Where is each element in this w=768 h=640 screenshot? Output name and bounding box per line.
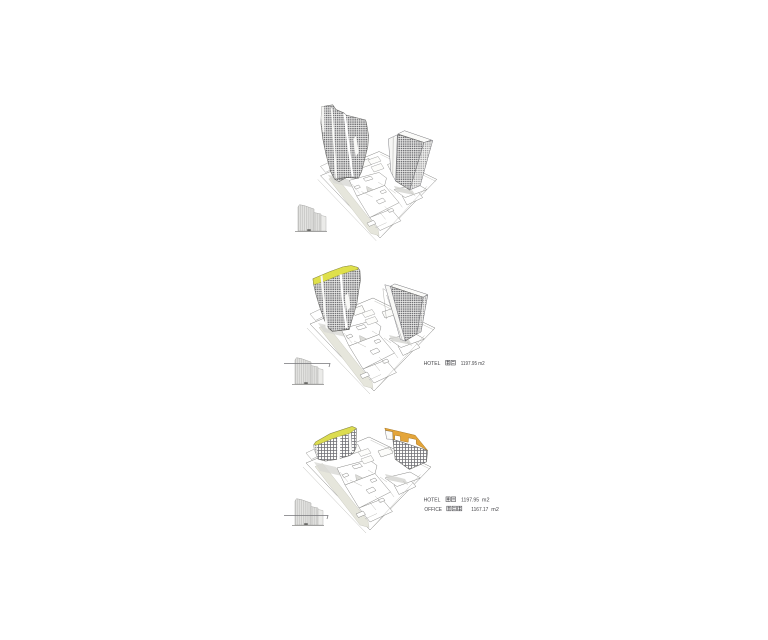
svg-text:m2: m2 xyxy=(491,507,499,513)
svg-text:1167.17: 1167.17 xyxy=(471,507,488,513)
svg-text:1197.95 m2: 1197.95 m2 xyxy=(461,361,485,367)
svg-text:HOTEL: HOTEL xyxy=(424,498,441,504)
svg-text:OFFICE: OFFICE xyxy=(424,507,442,513)
svg-text:HOTEL: HOTEL xyxy=(424,361,441,367)
svg-text:1197.95: 1197.95 xyxy=(461,498,479,504)
svg-text:m2: m2 xyxy=(482,498,490,504)
